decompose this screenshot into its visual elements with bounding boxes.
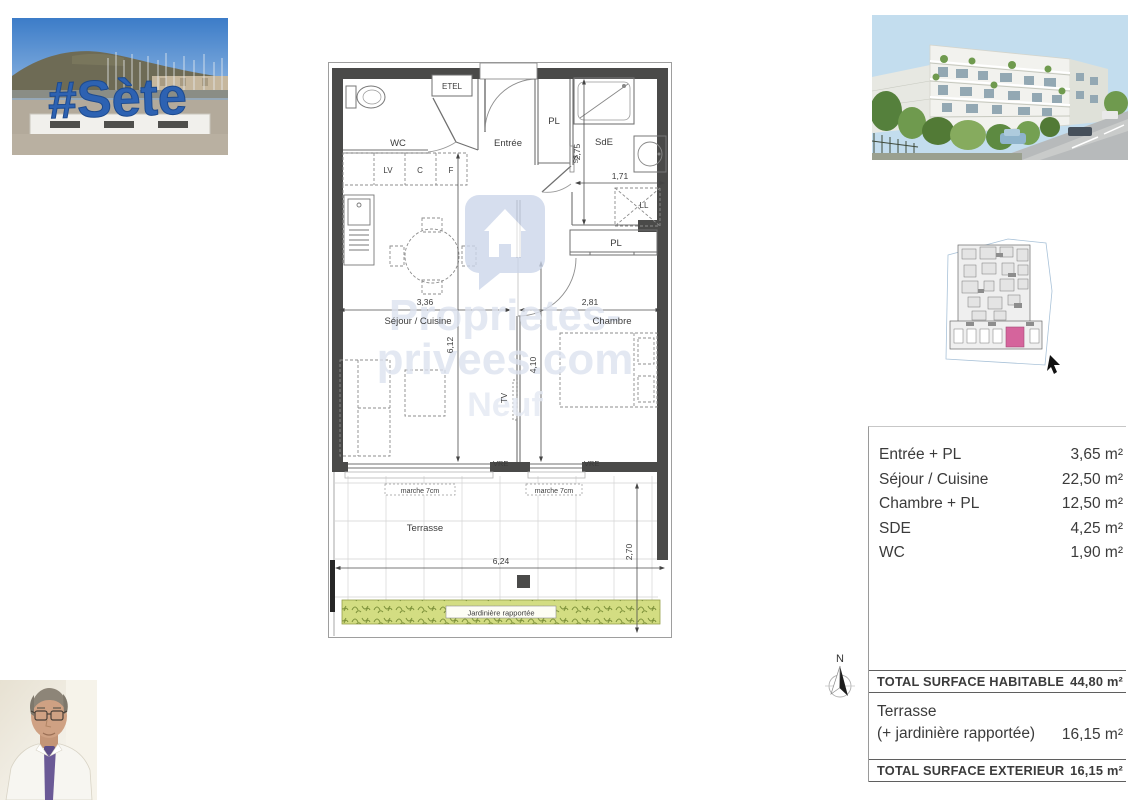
label-chambre: Chambre (592, 316, 631, 327)
surface-rows: Entrée + PL 3,65 m² Séjour / Cuisine 22,… (869, 427, 1126, 566)
label-tv: TV (500, 392, 509, 403)
dim-sejour-h: 6,12 (445, 336, 455, 353)
label-entree: Entrée (494, 138, 522, 149)
total-habitable-label: TOTAL SURFACE HABITABLE (877, 674, 1064, 689)
row-value: 3,65 m² (1070, 443, 1123, 468)
label-marche-right: marche 7cm (535, 488, 574, 495)
floor-plan: Proprietes- privees.com Neuf WC ETEL Ent… (328, 62, 672, 638)
label-pl-chambre: PL (610, 238, 622, 249)
label-f: F (449, 166, 454, 175)
dim-chambre-w: 2,81 (582, 297, 599, 307)
row-label: Chambre + PL (879, 492, 979, 517)
dim-terrasse-h: 2,70 (624, 543, 634, 560)
agent-photo (0, 680, 97, 800)
svg-text:Neuf: Neuf (467, 386, 543, 424)
mouse-cursor (1047, 355, 1060, 374)
row-value: 22,50 m² (1062, 468, 1123, 493)
dim-sde-h: 2,75 (572, 143, 582, 160)
label-ll: LL (640, 201, 649, 210)
svg-text:privees.com: privees.com (377, 335, 634, 384)
label-sejour: Séjour / Cuisine (384, 316, 451, 327)
terrasse-label-line1: Terrasse (877, 701, 1035, 723)
table-row: Entrée + PL 3,65 m² (879, 443, 1123, 468)
table-row: SDE 4,25 m² (879, 517, 1123, 542)
terrasse-row: Terrasse (+ jardinière rapportée) 16,15 … (869, 693, 1126, 759)
label-terrasse: Terrasse (407, 523, 443, 534)
total-exterieur-label: TOTAL SURFACE EXTERIEUR (877, 763, 1064, 778)
label-etel: ETEL (442, 82, 463, 91)
label-wc: WC (390, 138, 406, 149)
page: #Sète (0, 0, 1140, 800)
north-compass: N (818, 650, 862, 708)
label-jardiniere: Jardinière rapportée (467, 609, 534, 618)
total-habitable-row: TOTAL SURFACE HABITABLE 44,80 m² (869, 670, 1126, 693)
terrasse-label-line2: (+ jardinière rapportée) (877, 723, 1035, 745)
dim-chambre-h: 4,10 (528, 356, 538, 373)
label-c: C (417, 166, 423, 175)
dim-sde-w: 1,71 (612, 171, 629, 181)
terrasse-value: 16,15 m² (1062, 726, 1123, 745)
label-vre-right: VRE (584, 459, 599, 468)
label-lv: LV (383, 166, 393, 175)
row-label: SDE (879, 517, 911, 542)
row-label: Séjour / Cuisine (879, 468, 988, 493)
dim-terrasse-w: 6,24 (493, 556, 510, 566)
label-vre-left: VRE (493, 459, 508, 468)
row-value: 12,50 m² (1062, 492, 1123, 517)
table-row: Chambre + PL 12,50 m² (879, 492, 1123, 517)
highlighted-unit (1006, 327, 1024, 347)
table-row: WC 1,90 m² (879, 541, 1123, 566)
sete-sign: #Sète (47, 68, 188, 131)
dim-sejour-w: 3,36 (417, 297, 434, 307)
residence-render-photo (872, 15, 1128, 160)
total-exterieur-value: 16,15 m² (1070, 763, 1123, 778)
surface-panel: Entrée + PL 3,65 m² Séjour / Cuisine 22,… (868, 426, 1126, 782)
row-value: 1,90 m² (1070, 541, 1123, 566)
total-exterieur-row: TOTAL SURFACE EXTERIEUR 16,15 m² (869, 759, 1126, 782)
label-sde: SdE (595, 137, 613, 148)
harbor-photo: #Sète (12, 18, 228, 155)
label-pl-hall: PL (548, 116, 560, 127)
row-label: Entrée + PL (879, 443, 961, 468)
table-row: Séjour / Cuisine 22,50 m² (879, 468, 1123, 493)
label-marche-left: marche 7cm (401, 488, 440, 495)
total-habitable-value: 44,80 m² (1070, 674, 1123, 689)
key-plan (938, 233, 1066, 378)
row-value: 4,25 m² (1070, 517, 1123, 542)
row-label: WC (879, 541, 905, 566)
north-label: N (836, 653, 844, 665)
